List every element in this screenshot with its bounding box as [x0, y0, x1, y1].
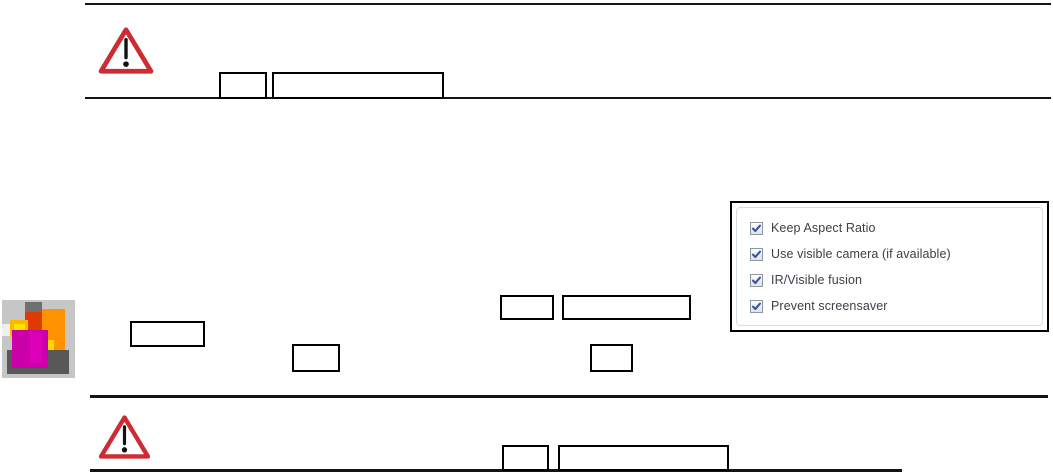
checkmark-icon [751, 301, 762, 312]
checkbox-row-use-visible-camera: Use visible camera (if available) [750, 241, 1042, 267]
checkbox-ir-visible-fusion[interactable] [750, 274, 763, 287]
checkbox-label: IR/Visible fusion [771, 274, 862, 287]
warning-triangle-icon [97, 26, 155, 75]
checkbox-row-prevent-screensaver: Prevent screensaver [750, 293, 1042, 319]
checkbox-prevent-screensaver[interactable] [750, 300, 763, 313]
options-groupbox: Keep Aspect Ratio Use visible camera (if… [736, 207, 1043, 326]
redacted-box-left [130, 321, 205, 347]
redacted-box-row2-b [590, 344, 633, 372]
checkbox-keep-aspect-ratio[interactable] [750, 222, 763, 235]
redacted-box-bottom-small [502, 445, 549, 471]
redacted-box-row2-a [292, 344, 340, 372]
checkbox-label: Keep Aspect Ratio [771, 222, 876, 235]
checkbox-label: Prevent screensaver [771, 300, 888, 313]
redacted-box-mid-small [500, 295, 554, 320]
checkbox-row-keep-aspect-ratio: Keep Aspect Ratio [750, 215, 1042, 241]
options-panel: Keep Aspect Ratio Use visible camera (if… [730, 201, 1049, 332]
checkbox-use-visible-camera[interactable] [750, 248, 763, 261]
divider-before-warning-bottom [90, 395, 1048, 398]
checkmark-icon [751, 223, 762, 234]
divider-top [85, 3, 1051, 5]
redacted-box-bottom-wide [558, 445, 729, 471]
checkbox-row-ir-visible-fusion: IR/Visible fusion [750, 267, 1042, 293]
redacted-box-top-wide [272, 72, 444, 99]
warning-triangle-icon [97, 414, 152, 460]
manual-page: Keep Aspect Ratio Use visible camera (if… [0, 0, 1053, 473]
divider-bottom [90, 469, 902, 472]
redacted-box-top-small [219, 72, 267, 99]
redacted-box-mid-wide [562, 295, 691, 320]
checkmark-icon [751, 249, 762, 260]
thermal-image-icon [2, 300, 75, 378]
checkmark-icon [751, 275, 762, 286]
checkbox-label: Use visible camera (if available) [771, 248, 951, 261]
